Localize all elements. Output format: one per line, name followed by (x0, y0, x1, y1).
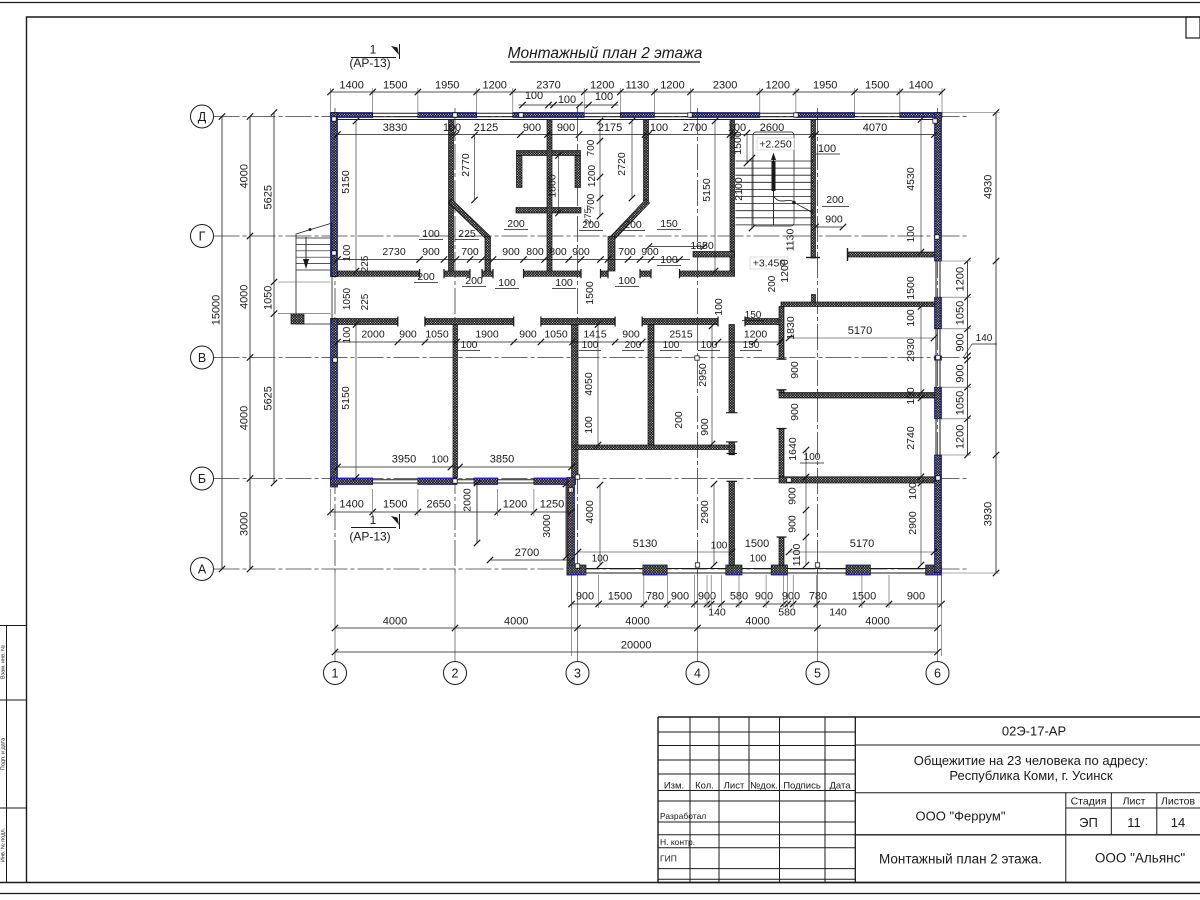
svg-text:100: 100 (443, 122, 461, 134)
svg-text:2900: 2900 (699, 500, 711, 524)
svg-text:4930: 4930 (983, 175, 995, 199)
svg-text:14: 14 (1171, 815, 1185, 830)
svg-text:2700: 2700 (515, 547, 539, 559)
svg-text:1800: 1800 (547, 174, 559, 198)
svg-text:1050: 1050 (342, 287, 353, 310)
svg-text:4000: 4000 (239, 285, 251, 309)
svg-text:Изм.: Изм. (664, 781, 684, 792)
svg-text:100: 100 (905, 309, 917, 327)
svg-text:140: 140 (829, 607, 847, 619)
svg-text:3830: 3830 (383, 122, 407, 134)
svg-text:1950: 1950 (813, 80, 837, 92)
svg-text:100: 100 (663, 340, 680, 351)
svg-text:100: 100 (498, 277, 516, 289)
svg-text:780: 780 (646, 591, 664, 603)
svg-text:100: 100 (618, 275, 636, 287)
svg-text:900: 900 (907, 591, 925, 603)
svg-text:780: 780 (809, 591, 827, 603)
svg-text:100: 100 (750, 554, 767, 565)
svg-text:5170: 5170 (850, 538, 874, 550)
svg-text:900: 900 (622, 329, 640, 341)
svg-text:900: 900 (789, 361, 801, 379)
svg-text:2600: 2600 (760, 122, 784, 134)
svg-text:(АР-13): (АР-13) (349, 56, 390, 70)
svg-text:2950: 2950 (697, 363, 709, 387)
svg-text:5150: 5150 (340, 386, 352, 410)
svg-text:1200: 1200 (766, 80, 790, 92)
svg-text:900: 900 (641, 246, 659, 258)
svg-text:2770: 2770 (460, 153, 472, 177)
svg-text:1500: 1500 (865, 80, 889, 92)
svg-text:Разработал: Разработал (660, 811, 706, 821)
svg-text:4000: 4000 (625, 616, 649, 628)
svg-text:2930: 2930 (905, 338, 917, 362)
svg-text:100: 100 (713, 298, 725, 316)
svg-text:4000: 4000 (584, 500, 596, 524)
svg-text:Кол.: Кол. (695, 781, 714, 792)
svg-text:5: 5 (814, 667, 821, 681)
svg-text:1050: 1050 (544, 329, 568, 341)
svg-text:200: 200 (625, 340, 642, 351)
svg-text:2100: 2100 (733, 177, 745, 201)
svg-text:100: 100 (461, 340, 478, 351)
svg-text:1500: 1500 (852, 591, 876, 603)
svg-text:А: А (198, 563, 207, 577)
svg-text:200: 200 (624, 219, 642, 231)
svg-text:Подпись: Подпись (783, 781, 821, 792)
svg-text:02Э-17-АР: 02Э-17-АР (1002, 724, 1066, 739)
svg-text:5130: 5130 (633, 538, 657, 550)
svg-text:4000: 4000 (239, 164, 251, 188)
svg-text:100: 100 (558, 94, 576, 106)
svg-text:1200: 1200 (744, 329, 768, 341)
svg-text:1900: 1900 (475, 329, 499, 341)
svg-text:ЭП: ЭП (1079, 815, 1098, 830)
svg-text:900: 900 (782, 591, 800, 603)
svg-text:1500: 1500 (608, 591, 632, 603)
svg-text:700: 700 (586, 139, 597, 156)
svg-text:200: 200 (767, 275, 778, 292)
svg-text:1: 1 (370, 513, 377, 527)
svg-text:3850: 3850 (490, 454, 514, 466)
svg-text:1: 1 (370, 43, 377, 57)
svg-text:900: 900 (755, 591, 773, 603)
svg-text:+2.250: +2.250 (759, 139, 792, 151)
svg-text:2: 2 (452, 667, 459, 681)
svg-text:2515: 2515 (669, 329, 693, 341)
svg-text:900: 900 (519, 329, 537, 341)
svg-text:1500: 1500 (383, 499, 407, 511)
svg-text:700: 700 (618, 246, 636, 258)
svg-text:Г: Г (199, 230, 206, 244)
svg-text:5625: 5625 (263, 386, 275, 410)
svg-text:1200: 1200 (779, 259, 791, 283)
svg-text:100: 100 (431, 454, 449, 466)
svg-text:2730: 2730 (382, 246, 406, 258)
svg-text:Н. контр.: Н. контр. (660, 837, 695, 847)
svg-text:100: 100 (342, 244, 353, 261)
svg-text:1: 1 (332, 667, 339, 681)
svg-text:150: 150 (660, 218, 678, 230)
svg-text:225: 225 (360, 255, 371, 272)
svg-text:1130: 1130 (785, 229, 797, 252)
svg-text:Д: Д (198, 110, 207, 124)
svg-text:5150: 5150 (701, 178, 713, 202)
svg-text:150: 150 (743, 340, 760, 351)
svg-text:1250: 1250 (540, 499, 564, 511)
svg-text:150: 150 (745, 310, 762, 321)
svg-text:800: 800 (549, 246, 567, 258)
svg-text:3000: 3000 (541, 514, 553, 538)
svg-text:800: 800 (526, 246, 544, 258)
svg-text:100: 100 (818, 143, 836, 155)
svg-text:3: 3 (574, 667, 581, 681)
svg-text:1200: 1200 (503, 499, 527, 511)
svg-text:Республика Коми, г. Усинск: Республика Коми, г. Усинск (949, 768, 1112, 783)
svg-text:225: 225 (458, 228, 476, 240)
svg-text:1500: 1500 (905, 276, 917, 300)
svg-text:2650: 2650 (426, 499, 450, 511)
svg-text:1200: 1200 (955, 425, 967, 449)
svg-text:3950: 3950 (392, 454, 416, 466)
svg-text:(АР-13): (АР-13) (349, 530, 390, 544)
svg-text:100: 100 (711, 541, 728, 552)
svg-text:900: 900 (787, 487, 799, 505)
svg-text:100: 100 (650, 122, 668, 134)
svg-text:Инв. № подл.: Инв. № подл. (1, 827, 7, 862)
svg-text:5625: 5625 (263, 185, 275, 209)
svg-text:3000: 3000 (239, 512, 251, 536)
svg-text:1130: 1130 (625, 80, 649, 92)
svg-text:580: 580 (778, 607, 796, 619)
svg-text:100: 100 (582, 340, 599, 351)
svg-text:200: 200 (673, 411, 685, 429)
svg-text:900: 900 (502, 246, 520, 258)
svg-text:15000: 15000 (211, 295, 223, 326)
svg-text:1200: 1200 (587, 164, 598, 187)
svg-text:100: 100 (555, 277, 573, 289)
svg-text:100: 100 (342, 326, 353, 343)
svg-text:2700: 2700 (683, 122, 707, 134)
svg-text:275: 275 (583, 208, 594, 224)
svg-text:2000: 2000 (361, 329, 385, 341)
svg-text:1500: 1500 (584, 281, 596, 305)
svg-text:1050: 1050 (425, 329, 449, 341)
svg-text:100: 100 (595, 91, 613, 103)
svg-text:100: 100 (907, 482, 919, 500)
svg-text:100: 100 (660, 254, 678, 266)
svg-text:140: 140 (708, 607, 726, 619)
svg-text:2720: 2720 (616, 152, 628, 176)
svg-text:1400: 1400 (339, 80, 363, 92)
svg-text:200: 200 (465, 275, 483, 287)
svg-text:1400: 1400 (339, 499, 363, 511)
svg-text:№док.: №док. (750, 781, 778, 792)
svg-text:700: 700 (586, 193, 597, 210)
svg-text:2300: 2300 (713, 80, 737, 92)
svg-text:900: 900 (787, 515, 799, 533)
svg-text:1400: 1400 (909, 80, 933, 92)
svg-text:100: 100 (906, 225, 917, 242)
svg-text:200: 200 (507, 218, 525, 230)
svg-text:4050: 4050 (583, 372, 595, 396)
svg-text:100: 100 (701, 340, 718, 351)
svg-text:В: В (198, 351, 206, 365)
svg-text:1050: 1050 (263, 286, 275, 310)
svg-text:200: 200 (826, 194, 844, 206)
svg-text:140: 140 (976, 333, 993, 344)
svg-text:1200: 1200 (590, 80, 614, 92)
svg-text:Монтажный план 2 этажа.: Монтажный план 2 этажа. (879, 852, 1042, 867)
svg-text:100: 100 (422, 228, 440, 240)
svg-text:100: 100 (583, 416, 595, 434)
svg-text:4000: 4000 (865, 616, 889, 628)
svg-text:4: 4 (694, 667, 701, 681)
svg-text:ООО "Феррум": ООО "Феррум" (916, 809, 1006, 824)
svg-text:900: 900 (576, 591, 594, 603)
svg-text:4070: 4070 (863, 122, 887, 134)
svg-text:Общежитие на 23 человека по ад: Общежитие на 23 человека по адресу: (914, 753, 1148, 768)
svg-text:4000: 4000 (745, 616, 769, 628)
svg-text:900: 900 (825, 214, 843, 226)
svg-text:900: 900 (557, 122, 575, 134)
svg-text:6: 6 (934, 667, 941, 681)
svg-text:4530: 4530 (905, 167, 917, 191)
svg-text:200: 200 (417, 271, 435, 283)
svg-text:1500: 1500 (732, 131, 744, 155)
svg-text:900: 900 (789, 403, 801, 421)
svg-text:1640: 1640 (787, 437, 799, 461)
svg-text:700: 700 (461, 246, 479, 258)
svg-text:1500: 1500 (383, 80, 407, 92)
svg-text:100: 100 (905, 387, 917, 405)
svg-text:1500: 1500 (745, 538, 769, 550)
svg-text:1050: 1050 (955, 301, 967, 325)
svg-text:1200: 1200 (955, 267, 967, 291)
svg-text:5170: 5170 (848, 325, 872, 337)
svg-text:2740: 2740 (905, 426, 917, 450)
svg-text:ООО "Альянс": ООО "Альянс" (1095, 851, 1185, 866)
svg-text:Лист: Лист (1123, 796, 1146, 808)
svg-text:Дата: Дата (829, 781, 851, 792)
svg-text:900: 900 (671, 591, 689, 603)
svg-text:1950: 1950 (435, 80, 459, 92)
svg-text:1100: 1100 (791, 544, 803, 567)
svg-text:20000: 20000 (621, 640, 652, 652)
svg-text:Лист: Лист (724, 781, 745, 792)
svg-text:Взам. инв. №: Взам. инв. № (1, 645, 7, 679)
svg-text:1650: 1650 (690, 240, 714, 252)
svg-text:900: 900 (399, 329, 417, 341)
svg-text:5150: 5150 (340, 170, 352, 194)
svg-text:900: 900 (699, 418, 711, 436)
svg-text:1050: 1050 (955, 391, 967, 415)
svg-text:Стадия: Стадия (1071, 796, 1107, 808)
svg-text:4000: 4000 (239, 406, 251, 430)
svg-text:225: 225 (360, 293, 371, 310)
svg-text:2900: 2900 (907, 511, 919, 535)
svg-text:900: 900 (955, 333, 967, 351)
svg-text:900: 900 (955, 364, 967, 382)
svg-text:1200: 1200 (482, 80, 506, 92)
svg-text:900: 900 (523, 122, 541, 134)
svg-text:2175: 2175 (598, 122, 622, 134)
svg-text:900: 900 (422, 246, 440, 258)
svg-text:1415: 1415 (583, 329, 607, 341)
svg-text:Подп. и дата: Подп. и дата (1, 737, 7, 770)
svg-text:ГИП: ГИП (660, 854, 677, 864)
svg-text:3930: 3930 (983, 502, 995, 526)
svg-text:Листов: Листов (1161, 796, 1196, 808)
svg-text:11: 11 (1127, 815, 1141, 830)
svg-text:4000: 4000 (383, 616, 407, 628)
svg-text:4000: 4000 (504, 616, 528, 628)
svg-text:Монтажный план 2 этажа: Монтажный план 2 этажа (508, 45, 703, 62)
svg-text:2000: 2000 (462, 488, 474, 512)
svg-text:100: 100 (525, 90, 543, 102)
svg-text:Б: Б (198, 472, 206, 486)
svg-text:900: 900 (572, 246, 590, 258)
svg-text:1200: 1200 (660, 80, 684, 92)
